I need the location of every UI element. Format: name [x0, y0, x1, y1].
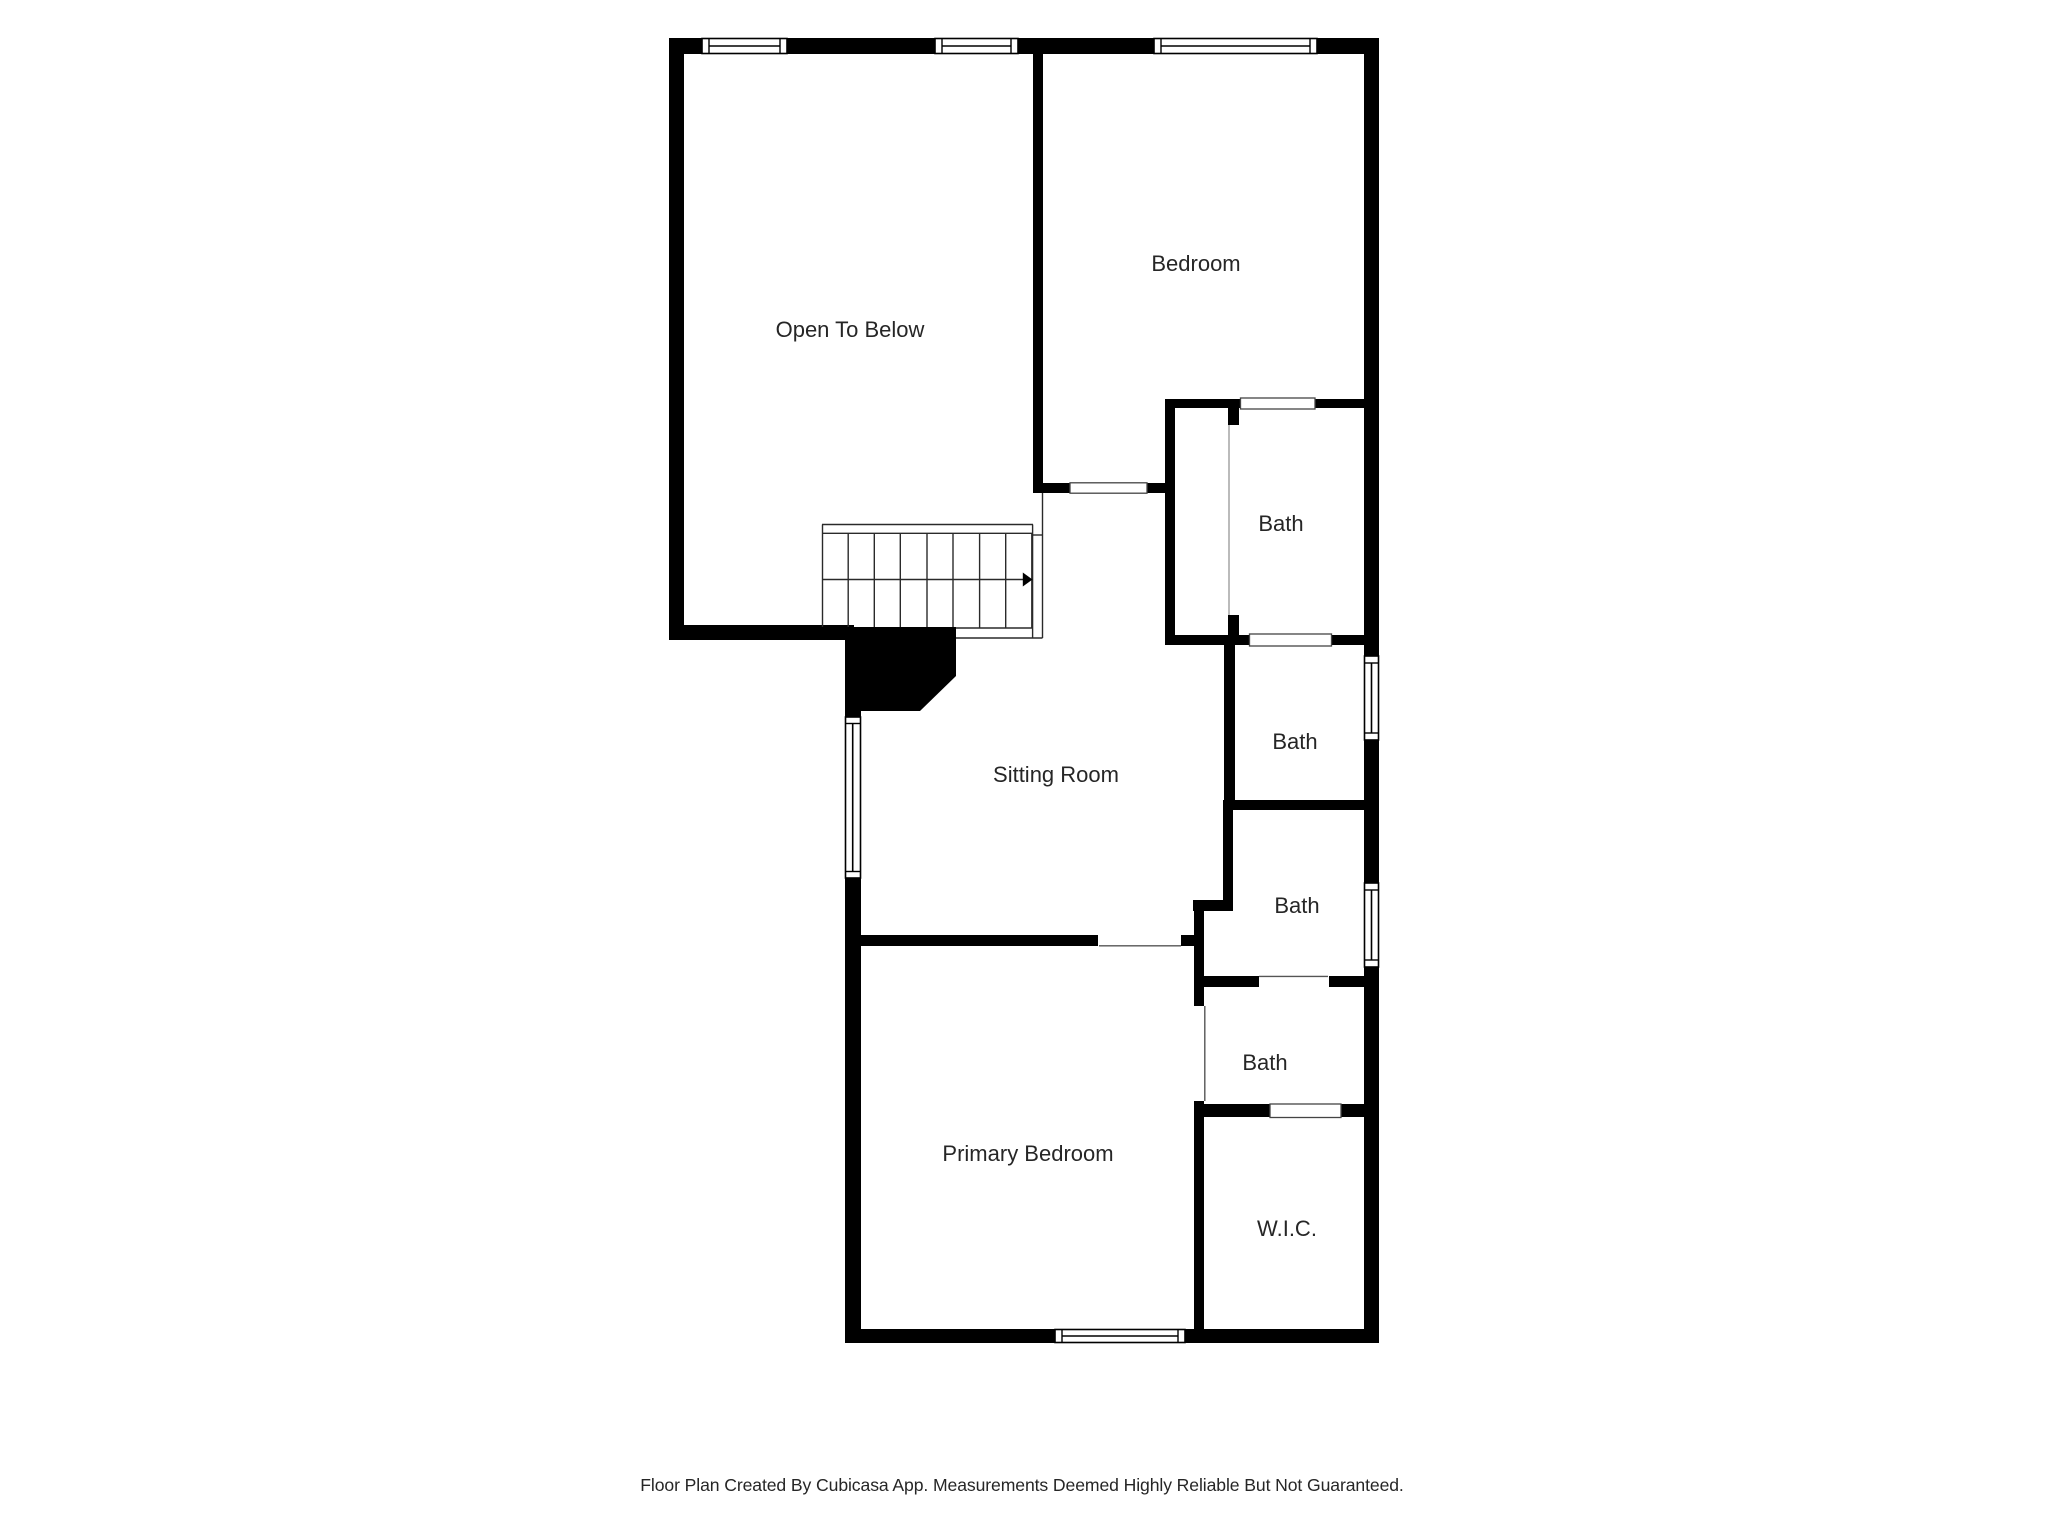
svg-text:Sitting Room: Sitting Room — [993, 762, 1119, 787]
svg-text:Bath: Bath — [1274, 893, 1319, 918]
svg-text:Bath: Bath — [1242, 1050, 1287, 1075]
svg-text:Open To Below: Open To Below — [776, 317, 925, 342]
svg-text:Floor Plan Created By Cubicasa: Floor Plan Created By Cubicasa App. Meas… — [640, 1475, 1403, 1495]
svg-text:Primary Bedroom: Primary Bedroom — [942, 1141, 1113, 1166]
svg-text:W.I.C.: W.I.C. — [1257, 1216, 1317, 1241]
svg-text:Bath: Bath — [1258, 511, 1303, 536]
svg-text:Bath: Bath — [1272, 729, 1317, 754]
svg-text:Bedroom: Bedroom — [1151, 251, 1240, 276]
